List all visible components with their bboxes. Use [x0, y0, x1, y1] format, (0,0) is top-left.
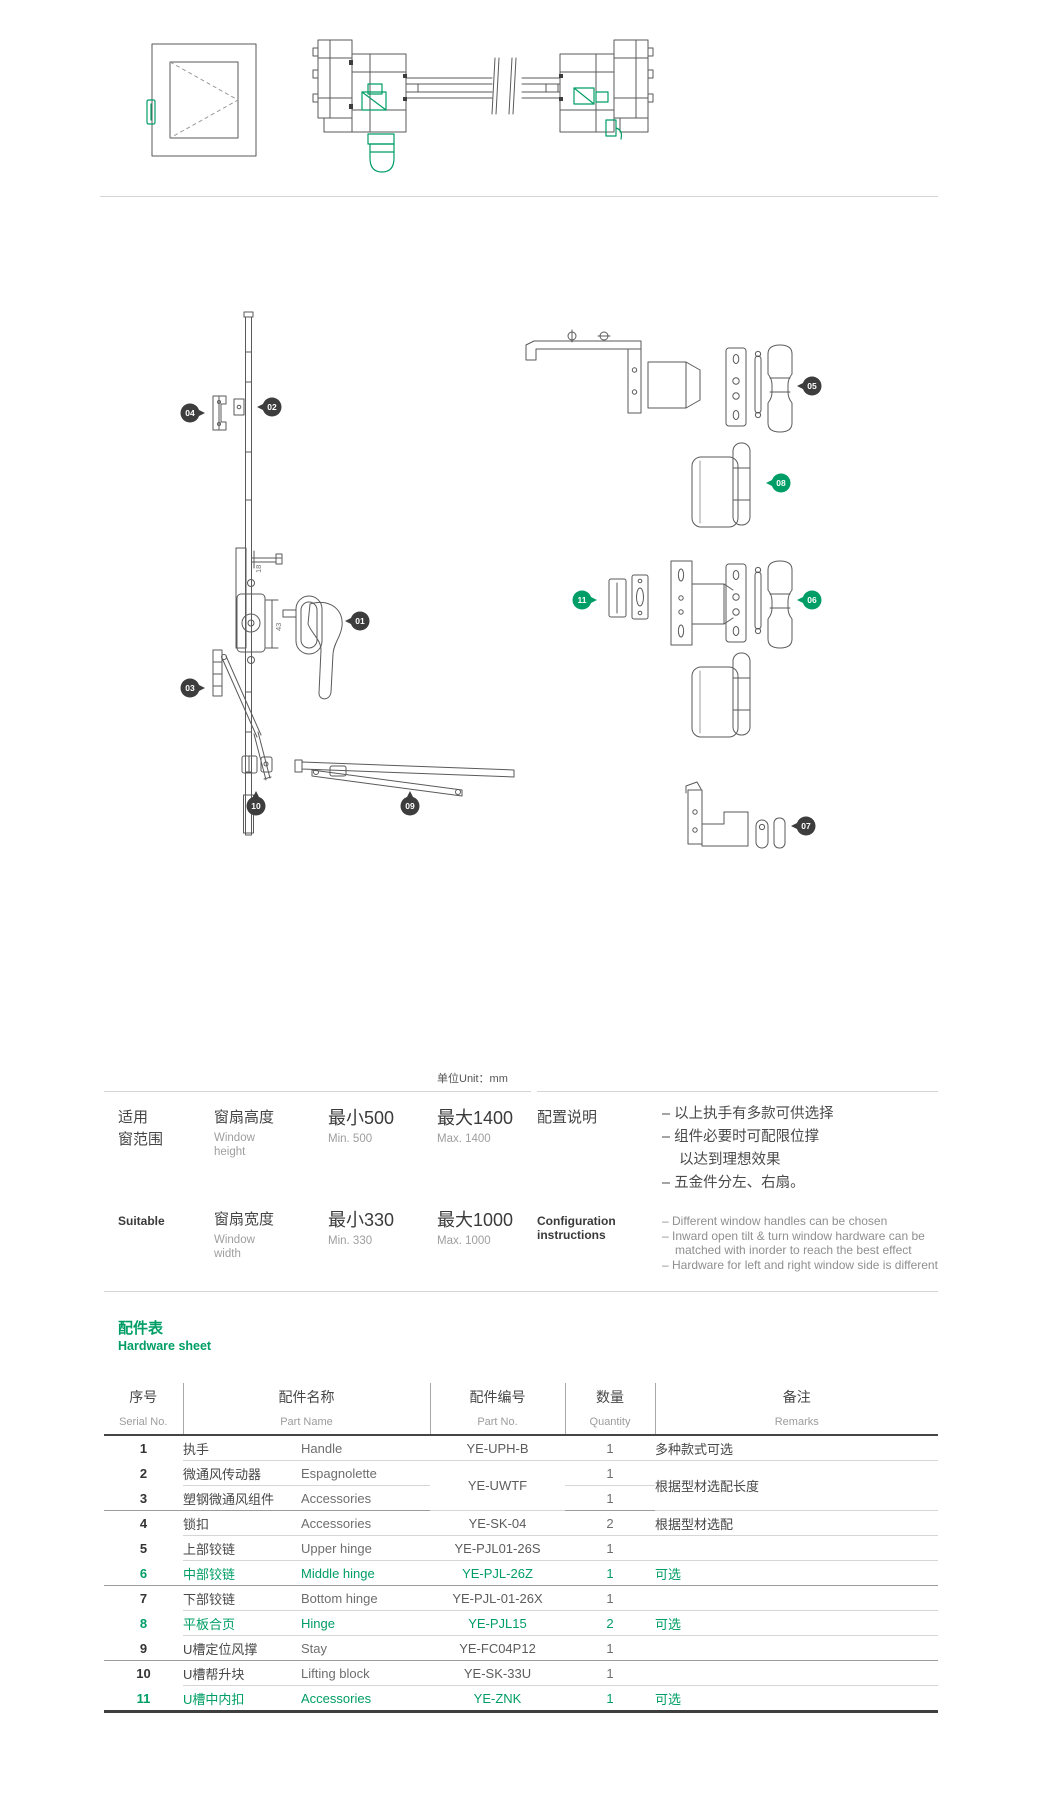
cell-qty: 2	[565, 1611, 655, 1636]
cell-partno: YE-SK-04	[430, 1511, 565, 1536]
note-line: – Different window handles can be chosen	[662, 1214, 940, 1229]
cell-name-en: Upper hinge	[301, 1536, 430, 1561]
col-name-en: Part Name	[183, 1410, 430, 1435]
lifting-blocks	[242, 756, 272, 773]
config-notes-cn: – 以上执手有多款可供选择 – 组件必要时可配限位撑 以达到理想效果 – 五金件…	[662, 1103, 940, 1195]
spec-group-line1: 适用	[118, 1107, 163, 1129]
window-schematic-icon	[147, 44, 256, 156]
hardware-table: 序号 配件名称 配件编号 数量 备注 Serial No. Part Name …	[104, 1383, 938, 1713]
cell-name-en: Lifting block	[301, 1661, 430, 1686]
cell-serial: 1	[104, 1435, 183, 1461]
param-en-line: height	[214, 1146, 255, 1160]
cell-serial: 6	[104, 1561, 183, 1586]
cell-name-cn: 下部铰链	[183, 1586, 301, 1611]
cell-partno: YE-FC04P12	[430, 1636, 565, 1661]
cell-name-cn: U槽中内扣	[183, 1686, 301, 1712]
cell-partno: YE-PJL-26Z	[430, 1561, 565, 1586]
cell-name-en: Bottom hinge	[301, 1586, 430, 1611]
cell-name-en: Stay	[301, 1636, 430, 1661]
upper-hinge	[526, 330, 700, 413]
cell-remarks: 可选	[655, 1561, 938, 1586]
cell-remarks: 可选	[655, 1686, 938, 1712]
table-row-optional: 11 U槽中内扣 Accessories YE-ZNK 1 可选	[104, 1686, 938, 1712]
hardware-sheet-title-cn: 配件表	[118, 1317, 163, 1338]
unit-label: 单位Unit：mm	[437, 1070, 508, 1086]
cell-partno: YE-ZNK	[430, 1686, 565, 1712]
svg-text:11: 11	[578, 595, 587, 605]
cell-partno: YE-UPH-B	[430, 1435, 565, 1461]
spec-min-height-cn: 最小500	[328, 1104, 394, 1130]
cell-name-en: Hinge	[301, 1611, 430, 1636]
cell-remarks: 根据型材选配长度	[655, 1461, 938, 1511]
cell-partno: YE-UWTF	[430, 1461, 565, 1511]
cell-name-en: Handle	[301, 1435, 430, 1461]
cell-name-cn: 锁扣	[183, 1511, 301, 1536]
cell-name-cn: 中部铰链	[183, 1561, 301, 1586]
dimension-43: 43	[266, 600, 283, 648]
cell-qty: 1	[565, 1435, 655, 1461]
callout-08: 08	[766, 474, 791, 493]
spec-max-width-en: Max. 1000	[437, 1235, 491, 1249]
table-row: 7 下部铰链 Bottom hinge YE-PJL-01-26X 1	[104, 1586, 938, 1611]
note-line: – 五金件分左、右扇。	[662, 1172, 940, 1195]
cell-remarks: 根据型材选配	[655, 1511, 938, 1536]
cell-qty: 1	[565, 1536, 655, 1561]
cell-name-cn: U槽定位风撑	[183, 1636, 301, 1661]
col-name-cn: 配件名称	[183, 1383, 430, 1410]
top-divider	[100, 196, 938, 197]
col-serial-en: Serial No.	[104, 1410, 183, 1435]
svg-text:07: 07	[801, 821, 811, 831]
cell-serial: 2	[104, 1461, 183, 1486]
table-row-optional: 6 中部铰链 Middle hinge YE-PJL-26Z 1 可选	[104, 1561, 938, 1586]
cell-serial: 5	[104, 1536, 183, 1561]
callout-07: 07	[791, 817, 816, 836]
cell-qty: 1	[565, 1561, 655, 1586]
cell-partno: YE-PJL15	[430, 1611, 565, 1636]
header-row-en: Serial No. Part Name Part No. Quantity R…	[104, 1410, 938, 1435]
frame-section-left	[313, 40, 492, 172]
spec-param-width-cn: 窗扇宽度	[214, 1209, 274, 1231]
spec-min-width-cn: 最小330	[328, 1206, 394, 1232]
callout-02: 02	[257, 398, 282, 417]
stay-arm	[295, 760, 514, 796]
cell-serial: 7	[104, 1586, 183, 1611]
svg-text:09: 09	[405, 801, 415, 811]
spec-bottom-divider	[104, 1291, 938, 1292]
cell-qty: 1	[565, 1486, 655, 1511]
cell-qty: 1	[565, 1661, 655, 1686]
hinge-cover	[692, 443, 750, 527]
cell-serial: 3	[104, 1486, 183, 1511]
spec-min-height-en: Min. 500	[328, 1133, 372, 1147]
cell-remarks	[655, 1661, 938, 1686]
callout-04: 04	[181, 404, 206, 423]
svg-text:43: 43	[274, 623, 283, 631]
cell-qty: 2	[565, 1511, 655, 1536]
col-serial-cn: 序号	[104, 1383, 183, 1410]
param-en-line: Window	[214, 1132, 255, 1146]
svg-text:18: 18	[254, 565, 263, 573]
cell-name-en: Accessories	[301, 1686, 430, 1712]
param-en-line: width	[214, 1248, 255, 1262]
svg-text:04: 04	[185, 408, 195, 418]
svg-text:03: 03	[185, 683, 195, 693]
cell-name-en: Espagnolette	[301, 1461, 430, 1486]
cell-serial: 4	[104, 1511, 183, 1536]
cell-remarks: 多种款式可选	[655, 1435, 938, 1461]
inner-latch-parts	[609, 575, 648, 619]
spec-max-width-cn: 最大1000	[437, 1206, 513, 1232]
frame-section-right	[522, 40, 653, 139]
table-row: 5 上部铰链 Upper hinge YE-PJL01-26S 1	[104, 1536, 938, 1561]
middle-hinge	[671, 561, 733, 645]
note-line: matched with inorder to reach the best e…	[662, 1243, 940, 1258]
col-partno-cn: 配件编号	[430, 1383, 565, 1410]
svg-text:06: 06	[807, 595, 817, 605]
config-notes-en: – Different window handles can be chosen…	[662, 1214, 940, 1272]
table-row: 10 U槽帮升块 Lifting block YE-SK-33U 1	[104, 1661, 938, 1686]
cell-partno: YE-PJL01-26S	[430, 1536, 565, 1561]
svg-text:08: 08	[776, 478, 786, 488]
spec-group-line2: 窗范围	[118, 1129, 163, 1151]
callout-05: 05	[797, 377, 822, 396]
cell-remarks	[655, 1536, 938, 1561]
table-row: 9 U槽定位风撑 Stay YE-FC04P12 1	[104, 1636, 938, 1661]
spec-divider-left	[104, 1091, 531, 1092]
spec-max-height-en: Max. 1400	[437, 1133, 491, 1147]
bottom-hinge	[686, 782, 785, 848]
note-line: – Inward open tilt & turn window hardwar…	[662, 1229, 940, 1244]
cell-name-cn: 平板合页	[183, 1611, 301, 1636]
cell-name-cn: 上部铰链	[183, 1536, 301, 1561]
catalog-page: 18 43	[0, 0, 1038, 1800]
note-line: – 以上执手有多款可供选择	[662, 1103, 940, 1126]
spec-min-width-en: Min. 330	[328, 1235, 372, 1249]
cell-qty: 1	[565, 1586, 655, 1611]
note-line: – Hardware for left and right window sid…	[662, 1258, 940, 1273]
callout-06: 06	[797, 591, 822, 610]
cell-name-cn: U槽帮升块	[183, 1661, 301, 1686]
window-handle	[283, 596, 342, 699]
cell-remarks	[655, 1636, 938, 1661]
callout-01: 01	[345, 612, 370, 631]
exploded-hardware-diagram: 18 43	[140, 300, 940, 860]
spec-max-height-cn: 最大1400	[437, 1104, 513, 1130]
cell-qty: 1	[565, 1686, 655, 1712]
spec-param-width-en: Window width	[214, 1234, 255, 1261]
cell-remarks: 可选	[655, 1611, 938, 1636]
spec-group-en: Suitable	[118, 1214, 165, 1228]
table-row: 2 微通风传动器 Espagnolette YE-UWTF 1 根据型材选配长度	[104, 1461, 938, 1486]
config-title-en-line: instructions	[537, 1228, 616, 1242]
callout-09: 09	[401, 791, 420, 816]
header-row-cn: 序号 配件名称 配件编号 数量 备注	[104, 1383, 938, 1410]
col-qty-cn: 数量	[565, 1383, 655, 1410]
config-title-cn: 配置说明	[537, 1107, 597, 1129]
cell-partno: YE-SK-33U	[430, 1661, 565, 1686]
hardware-sheet-title-en: Hardware sheet	[118, 1339, 211, 1353]
cell-name-en: Middle hinge	[301, 1561, 430, 1586]
config-title-en-line: Configuration	[537, 1214, 616, 1228]
spec-divider-right	[537, 1091, 938, 1092]
svg-text:10: 10	[251, 801, 261, 811]
table-row: 4 锁扣 Accessories YE-SK-04 2 根据型材选配	[104, 1511, 938, 1536]
callout-11: 11	[573, 591, 598, 610]
spec-param-height-en: Window height	[214, 1132, 255, 1159]
cell-name-cn: 塑钢微通风组件	[183, 1486, 301, 1511]
col-partno-en: Part No.	[430, 1410, 565, 1435]
cell-serial: 10	[104, 1661, 183, 1686]
col-remarks-cn: 备注	[655, 1383, 938, 1410]
corner-drive-bracket	[213, 396, 226, 430]
callout-03: 03	[181, 679, 206, 698]
espagnolette-bar	[234, 312, 254, 835]
note-line: – 组件必要时可配限位撑	[662, 1126, 940, 1149]
spec-group-cn: 适用 窗范围	[118, 1107, 163, 1151]
cell-name-cn: 执手	[183, 1435, 301, 1461]
cell-name-en: Accessories	[301, 1486, 430, 1511]
cell-qty: 1	[565, 1636, 655, 1661]
svg-text:05: 05	[807, 381, 817, 391]
col-qty-en: Quantity	[565, 1410, 655, 1435]
cell-partno: YE-PJL-01-26X	[430, 1586, 565, 1611]
cell-qty: 1	[565, 1461, 655, 1486]
cell-name-cn: 微通风传动器	[183, 1461, 301, 1486]
note-line: 以达到理想效果	[662, 1149, 940, 1172]
cell-remarks	[655, 1586, 938, 1611]
col-remarks-en: Remarks	[655, 1410, 938, 1435]
table-row-optional: 8 平板合页 Hinge YE-PJL15 2 可选	[104, 1611, 938, 1636]
cell-serial: 9	[104, 1636, 183, 1661]
break-marks	[492, 58, 516, 114]
cell-serial: 8	[104, 1611, 183, 1636]
svg-text:01: 01	[355, 616, 365, 626]
config-title-en: Configuration instructions	[537, 1214, 616, 1242]
cell-serial: 11	[104, 1686, 183, 1712]
hinge-plate-pin-cover	[726, 345, 792, 432]
table-row: 1 执手 Handle YE-UPH-B 1 多种款式可选	[104, 1435, 938, 1461]
cell-name-en: Accessories	[301, 1511, 430, 1536]
top-section-drawings	[100, 28, 940, 178]
spec-param-height-cn: 窗扇高度	[214, 1107, 274, 1129]
param-en-line: Window	[214, 1234, 255, 1248]
svg-text:02: 02	[267, 402, 277, 412]
